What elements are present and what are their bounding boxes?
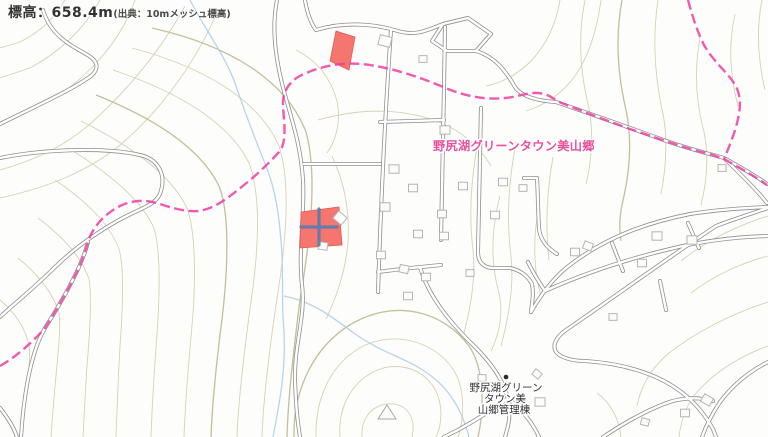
road-layer <box>0 0 768 437</box>
building <box>419 56 427 63</box>
building <box>519 185 527 192</box>
building <box>377 251 386 259</box>
building <box>478 375 486 382</box>
elevation-readout: 標高：658.4m(出典：10mメッシュ標高) <box>8 2 231 22</box>
building <box>438 210 447 218</box>
building <box>640 418 649 427</box>
building <box>687 236 697 244</box>
building <box>459 182 468 190</box>
building <box>389 165 399 173</box>
building <box>399 264 409 273</box>
building <box>681 409 690 417</box>
elevation-source: (出典：10mメッシュ標高) <box>113 9 230 20</box>
building <box>380 203 390 211</box>
triangle-landmark-icon <box>378 405 396 419</box>
building <box>718 165 726 172</box>
building <box>440 232 449 240</box>
building <box>571 248 580 256</box>
contour-lines-layer <box>0 0 768 437</box>
map-labels-layer: 野尻湖グリーンタウン美山郷 野尻湖グリーン タウン美 山郷管理棟 <box>433 138 595 416</box>
town-name-label: 野尻湖グリーンタウン美山郷 <box>433 138 595 153</box>
building <box>414 230 423 238</box>
facility-label-line3: 山郷管理棟 <box>478 403 531 416</box>
elevation-value: 標高：658.4m <box>8 5 113 21</box>
building <box>532 369 542 379</box>
building <box>440 126 450 134</box>
building <box>582 241 593 251</box>
building <box>638 259 647 267</box>
building <box>535 398 545 406</box>
building <box>491 211 500 219</box>
building <box>378 35 392 48</box>
topographic-map[interactable]: 野尻湖グリーンタウン美山郷 野尻湖グリーン タウン美 山郷管理棟 標高：658.… <box>0 0 768 437</box>
building <box>701 394 714 406</box>
building-point-icon <box>504 375 509 380</box>
building <box>409 184 418 192</box>
building <box>499 178 508 186</box>
building <box>652 232 662 240</box>
building <box>466 270 474 277</box>
building <box>422 273 431 281</box>
map-canvas[interactable]: 野尻湖グリーンタウン美山郷 野尻湖グリーン タウン美 山郷管理棟 <box>0 0 768 437</box>
building <box>609 314 617 321</box>
building <box>404 292 413 300</box>
